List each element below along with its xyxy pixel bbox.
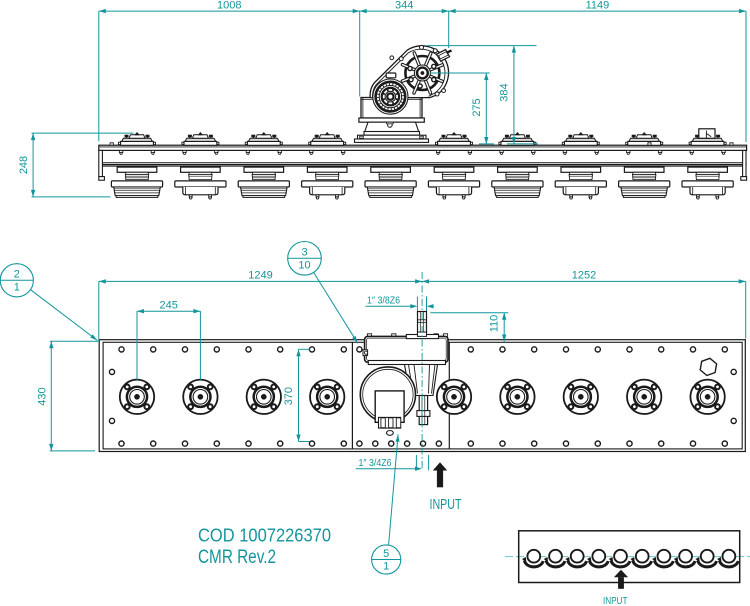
svg-text:1″ 3/8Z6: 1″ 3/8Z6 [367, 295, 400, 307]
svg-text:1249: 1249 [248, 269, 272, 281]
svg-text:CMR Rev.2: CMR Rev.2 [198, 547, 276, 568]
svg-text:2: 2 [14, 269, 20, 281]
svg-text:COD 1007226370: COD 1007226370 [198, 524, 331, 545]
svg-text:245: 245 [160, 299, 178, 311]
svg-text:3: 3 [301, 247, 307, 259]
svg-text:344: 344 [395, 0, 413, 11]
svg-text:INPUT: INPUT [603, 595, 628, 606]
svg-text:INPUT: INPUT [430, 496, 462, 513]
svg-text:1149: 1149 [586, 0, 610, 11]
svg-text:430: 430 [36, 387, 48, 405]
svg-text:370: 370 [283, 387, 295, 405]
svg-text:5: 5 [383, 548, 389, 560]
svg-text:10: 10 [298, 260, 310, 272]
svg-text:248: 248 [18, 156, 30, 174]
svg-text:1″ 3/4Z6: 1″ 3/4Z6 [359, 457, 392, 469]
svg-text:1: 1 [383, 561, 389, 573]
svg-text:275: 275 [471, 98, 483, 116]
svg-text:384: 384 [498, 83, 510, 101]
svg-text:1: 1 [14, 282, 20, 294]
svg-text:1252: 1252 [572, 269, 596, 281]
svg-text:110: 110 [489, 315, 501, 333]
svg-text:1008: 1008 [217, 0, 241, 11]
